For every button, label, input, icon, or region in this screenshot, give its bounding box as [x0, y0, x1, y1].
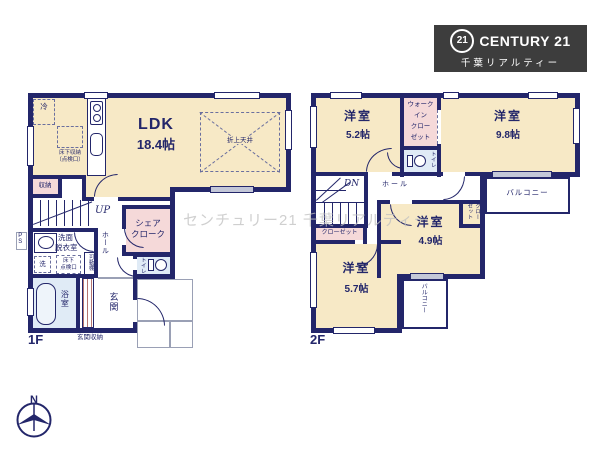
window — [310, 252, 317, 308]
floor-plan-canvas: 冷 床下収納 （点検口） LDK 18.4帖 折上天井 収納 UP ホール シェ… — [0, 0, 600, 450]
washroom-label: 脱衣室 — [55, 244, 78, 253]
century21-logo: 21 CENTURY 21 千葉リアルティー — [434, 25, 587, 72]
wall-segment — [465, 172, 480, 176]
window — [84, 92, 108, 99]
wall-segment — [28, 175, 86, 179]
window — [27, 126, 34, 166]
wall-segment — [118, 197, 174, 201]
movable-shelf-label: 可動棚 — [87, 254, 93, 271]
wic-label: ゼット — [404, 134, 437, 141]
porch-step — [170, 321, 193, 348]
stairs-down-label: DN — [344, 179, 359, 189]
stair-step — [80, 200, 81, 226]
window — [573, 108, 580, 144]
toilet-1f-label: トイレ — [139, 257, 145, 274]
toilet-bowl-icon — [155, 259, 167, 271]
door-arc — [117, 257, 137, 277]
underfloor-hatch-label: 点検口 — [56, 265, 81, 271]
wall-segment — [400, 146, 441, 150]
room-size-west-5-2: 5.2帖 — [316, 130, 400, 142]
toilet-bowl-icon — [414, 155, 426, 167]
room-label-west-9-8: 洋室 — [441, 110, 575, 124]
underfloor-hatch-label: 床下 — [56, 258, 81, 264]
underfloor-storage-label: （点検口） — [46, 157, 94, 163]
wall-segment — [311, 240, 355, 244]
watermark: センチュリー21 千葉リアルティー — [183, 212, 430, 229]
entrance-storage-shelf — [82, 278, 94, 328]
entrance-step-line — [98, 277, 133, 279]
fridge-label: 冷 — [33, 103, 55, 112]
wall-segment — [76, 274, 80, 333]
wall-segment — [28, 328, 138, 333]
window — [492, 171, 552, 178]
window — [330, 92, 362, 99]
wic-label: クロー — [404, 123, 437, 130]
raised-ceiling-label: 折上天井 — [200, 137, 280, 144]
window — [214, 92, 260, 99]
wall-segment — [122, 205, 174, 209]
pipe-space-label: PS — [17, 233, 23, 245]
wall-segment — [311, 172, 366, 176]
entrance-storage-label: 玄関収納 — [68, 334, 112, 341]
century21-seal-icon: 21 — [450, 29, 474, 53]
brand-subtitle: 千葉リアルティー — [461, 55, 560, 69]
window — [443, 92, 459, 99]
brand-name: CENTURY 21 — [479, 33, 570, 49]
balcony-bottom-label: バルコニー — [420, 283, 426, 313]
closet-1f-label: 収納 — [32, 182, 58, 189]
bathtub-icon — [36, 283, 56, 325]
entrance-label: 玄関 — [108, 292, 117, 312]
hall-2f-label: ホール — [382, 181, 409, 189]
stair-step — [56, 200, 57, 226]
closet-left-label: クローゼット — [316, 230, 363, 237]
room-size-west-9-8: 9.8帖 — [441, 130, 575, 142]
room-size-west-4-9: 4.9帖 — [381, 236, 480, 248]
wic-label: ウォーク — [404, 101, 437, 108]
washer-label: 洗 — [34, 261, 51, 268]
floor-label-1f: 1F — [28, 333, 43, 348]
window — [210, 186, 254, 193]
toilet-tank-icon — [407, 155, 413, 167]
window — [333, 327, 375, 334]
wic-opening — [437, 110, 441, 144]
compass-n-label: N — [30, 394, 38, 406]
window — [285, 110, 292, 150]
underfloor-storage-box — [57, 126, 83, 148]
room-label-ldk: LDK — [96, 116, 216, 134]
bath-label: 浴室 — [60, 290, 68, 308]
door-arc — [443, 176, 465, 200]
stair-step — [72, 200, 73, 226]
wall-segment — [363, 228, 367, 244]
wic-label: イン — [404, 112, 437, 119]
room-size-west-5-7: 5.7帖 — [316, 284, 397, 296]
underfloor-storage-label: 床下収納 — [46, 150, 94, 156]
window — [27, 288, 34, 316]
window — [410, 273, 444, 280]
wall-segment — [28, 194, 62, 198]
wall-segment — [392, 172, 443, 176]
hall-1f-label: ホール — [101, 231, 108, 255]
window — [528, 92, 558, 99]
closet-small-label: クローゼット — [464, 203, 480, 223]
compass-north-icon: N — [12, 392, 56, 447]
toilet-2f-label: トイレ — [429, 151, 435, 168]
washbasin-icon — [38, 236, 54, 249]
window — [310, 106, 317, 148]
room-size-ldk: 18.4帖 — [96, 138, 216, 153]
stair-direction-line — [33, 201, 92, 225]
stairs-up-label: UP — [95, 205, 110, 217]
stair-step — [48, 200, 49, 226]
toilet-tank-icon — [148, 259, 154, 271]
stair-step — [316, 190, 346, 191]
balcony-right-label: バルコニー — [485, 189, 570, 198]
room-label-west-5-2: 洋室 — [316, 110, 400, 124]
floor-label-2f: 2F — [310, 333, 325, 348]
stove-burner-icon — [93, 104, 101, 112]
washroom-label: 洗面 — [58, 234, 73, 243]
